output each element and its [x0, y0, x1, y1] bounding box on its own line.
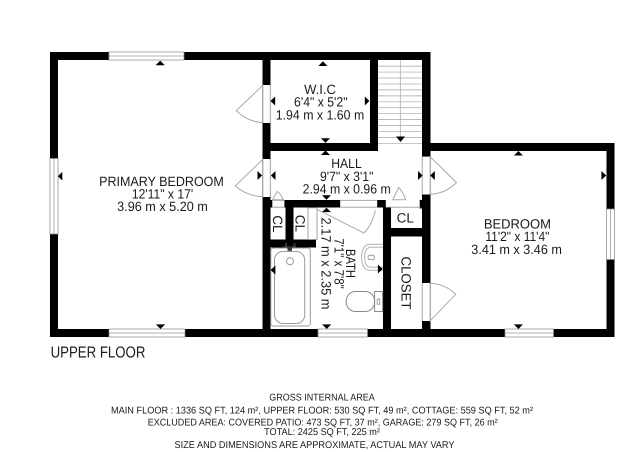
- svg-text:MAIN FLOOR : 1336 SQ FT, 124 m: MAIN FLOOR : 1336 SQ FT, 124 m², UPPER F…: [111, 405, 534, 416]
- svg-text:CL: CL: [292, 215, 307, 233]
- svg-text:CLOSET: CLOSET: [399, 257, 414, 310]
- svg-text:1.94 m x 1.60 m: 1.94 m x 1.60 m: [276, 107, 365, 122]
- svg-text:2.94 m x 0.96 m: 2.94 m x 0.96 m: [303, 181, 391, 196]
- svg-text:CL: CL: [270, 215, 285, 233]
- svg-text:UPPER FLOOR: UPPER FLOOR: [51, 344, 146, 361]
- svg-text:3.96 m x 5.20 m: 3.96 m x 5.20 m: [117, 199, 208, 214]
- svg-text:3.41 m x 3.46 m: 3.41 m x 3.46 m: [471, 242, 562, 257]
- svg-text:2.17 m x 2.35 m: 2.17 m x 2.35 m: [319, 218, 334, 310]
- svg-text:TOTAL: 2425 SQ FT, 225 m²: TOTAL: 2425 SQ FT, 225 m²: [264, 427, 380, 438]
- svg-text:SIZE AND DIMENSIONS ARE APPROX: SIZE AND DIMENSIONS ARE APPROXIMATE, ACT…: [175, 440, 455, 451]
- svg-text:GROSS INTERNAL AREA: GROSS INTERNAL AREA: [269, 392, 375, 403]
- svg-text:CL: CL: [397, 211, 415, 226]
